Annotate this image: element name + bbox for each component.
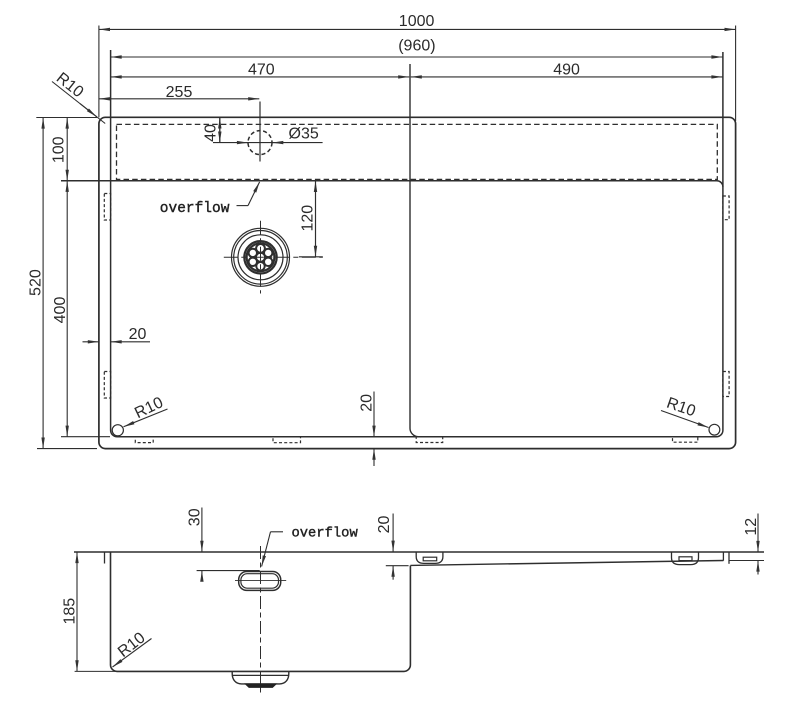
svg-text:R10: R10 (664, 395, 697, 421)
svg-text:Ø35: Ø35 (289, 126, 319, 143)
svg-text:R10: R10 (115, 629, 149, 661)
svg-text:120: 120 (300, 205, 317, 232)
svg-text:20: 20 (376, 516, 393, 534)
svg-text:overflow: overflow (160, 201, 230, 217)
svg-text:12: 12 (743, 518, 760, 536)
svg-text:20: 20 (129, 326, 147, 343)
svg-text:100: 100 (51, 136, 68, 163)
svg-text:R10: R10 (132, 394, 166, 422)
svg-text:20: 20 (359, 394, 376, 412)
svg-text:490: 490 (553, 61, 580, 78)
svg-text:185: 185 (61, 598, 78, 625)
svg-text:R10: R10 (53, 70, 87, 102)
svg-text:400: 400 (52, 297, 69, 324)
svg-text:(960): (960) (398, 37, 435, 54)
svg-text:overflow: overflow (292, 526, 359, 542)
svg-text:520: 520 (27, 269, 44, 296)
svg-text:30: 30 (186, 508, 203, 526)
svg-text:40: 40 (203, 124, 220, 142)
svg-text:1000: 1000 (399, 13, 435, 30)
svg-text:255: 255 (166, 84, 193, 101)
svg-text:470: 470 (248, 61, 275, 78)
